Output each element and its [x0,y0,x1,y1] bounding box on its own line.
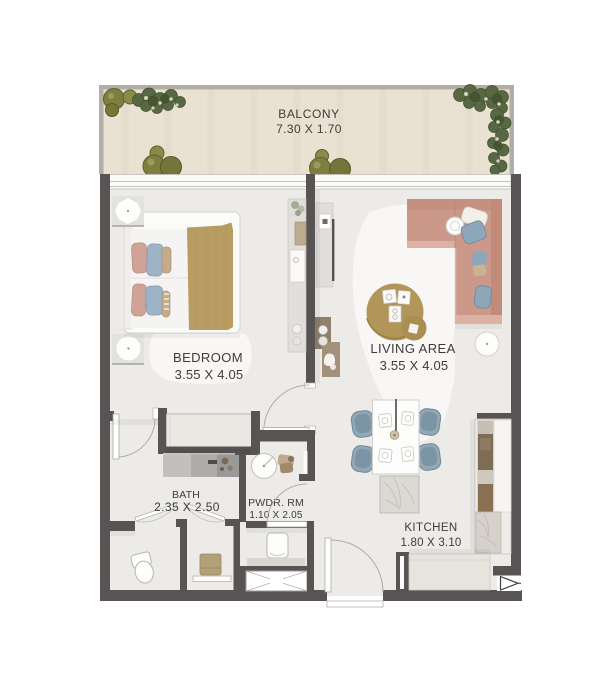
svg-text:LIVING AREA: LIVING AREA [370,341,455,356]
svg-text:1.80 X 3.10: 1.80 X 3.10 [400,537,461,549]
svg-text:BEDROOM: BEDROOM [173,350,243,365]
svg-text:BALCONY: BALCONY [278,107,340,121]
svg-text:KITCHEN: KITCHEN [404,522,457,534]
svg-text:2.35 X 2.50: 2.35 X 2.50 [154,500,220,514]
svg-text:7.30 X 1.70: 7.30 X 1.70 [276,122,342,136]
svg-text:3.55 X 4.05: 3.55 X 4.05 [175,367,244,382]
svg-text:3.55 X 4.05: 3.55 X 4.05 [380,358,449,373]
svg-text:1.10 X 2.05: 1.10 X 2.05 [249,510,303,521]
